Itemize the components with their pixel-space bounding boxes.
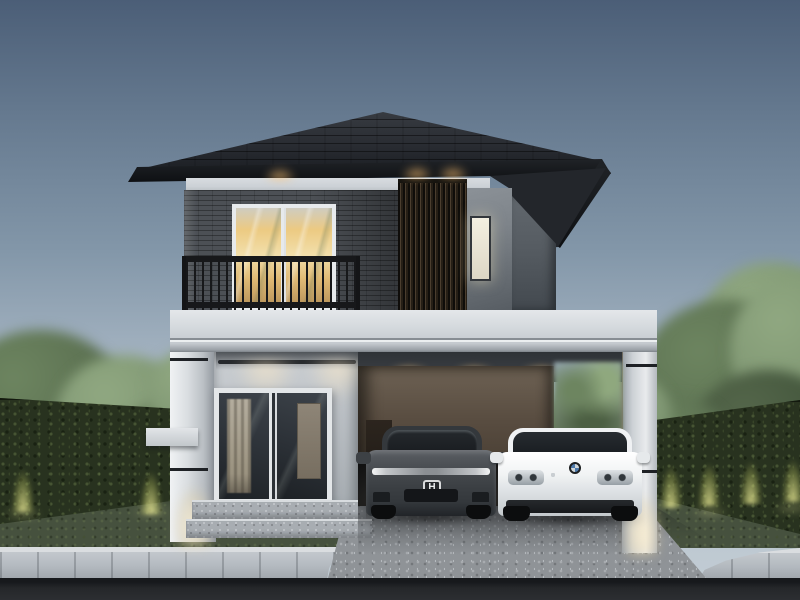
bmw-kidney-grille (551, 473, 595, 498)
entry-step (192, 500, 366, 519)
bmw-kidney-right (551, 473, 555, 477)
column-groove (626, 364, 657, 367)
ground-floor-window (214, 388, 332, 504)
eave-downlight-glow (263, 166, 297, 180)
curtain (227, 399, 251, 493)
honda-chrome-light-bar (372, 468, 490, 475)
honda-grille (404, 489, 458, 502)
concrete-slab-band (170, 310, 657, 352)
bmw-mirror-left (490, 452, 503, 463)
bmw-headlight-right (597, 470, 633, 485)
honda-wheel-left (371, 505, 396, 519)
column-groove (170, 358, 208, 361)
eave-downlight-glow (436, 164, 470, 178)
fence-cap-ledge (146, 428, 198, 446)
bmw-wheel-left (503, 506, 530, 521)
bmw-mirror-right (637, 452, 650, 463)
small-lit-window (470, 216, 491, 281)
eave-downlight-glow (400, 164, 434, 178)
entry-step (186, 519, 372, 538)
honda-wheel-right (466, 505, 491, 519)
honda-mirror-left (356, 452, 371, 464)
interior-door (297, 403, 321, 479)
wood-louver-screen (398, 179, 467, 310)
rendered-scene: H (0, 0, 800, 600)
bmw-headlight-left (508, 470, 544, 485)
bmw-wheel-right (611, 506, 638, 521)
balcony-railing (182, 256, 360, 310)
